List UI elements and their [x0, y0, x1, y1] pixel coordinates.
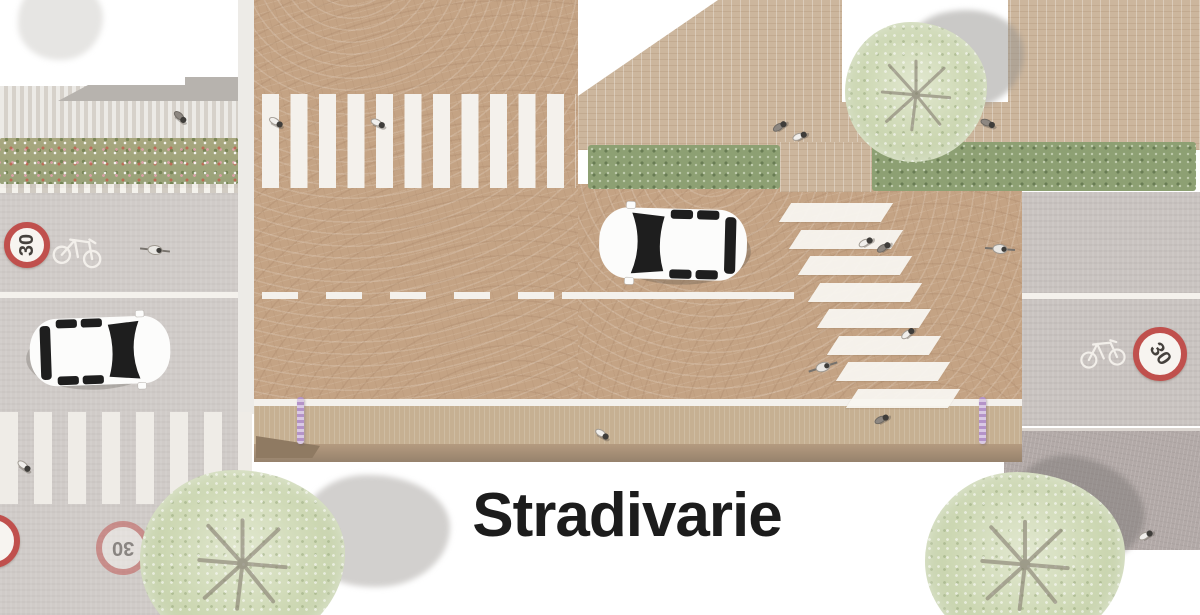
cyclist-icon [983, 241, 1018, 257]
speed-limit-value: 30 [17, 234, 37, 256]
speed-limit-value: 30 [112, 538, 134, 558]
lane-line-west [0, 292, 238, 298]
centre-line-solid [562, 292, 794, 299]
street-name-label: Stradivarie [262, 478, 992, 553]
crosswalk-north [262, 94, 576, 188]
crosswalk-stripe [827, 336, 941, 355]
speed-limit-sign-east: 30 [1133, 327, 1187, 381]
car-icon-main-road [590, 197, 754, 293]
road-east [1022, 192, 1200, 426]
building-wall [58, 85, 238, 101]
crosswalk-stripe [798, 256, 912, 275]
crosswalk-stripe [846, 389, 960, 408]
crosswalk-stripe [808, 283, 922, 302]
lane-line-east [1022, 293, 1200, 299]
sidewalk-south [254, 406, 1022, 446]
bike-lane-marking-icon [49, 222, 109, 275]
building-wall-step [185, 77, 238, 87]
curb-strip [238, 0, 254, 414]
car-icon-west-road [23, 305, 180, 398]
speed-limit-value: 30 [0, 530, 3, 552]
centre-line-dashed [262, 292, 562, 299]
curb-dash-band [0, 184, 238, 193]
sidewalk-south-shadow [254, 444, 1022, 462]
tree-icon-northeast [845, 22, 987, 162]
street-plan-canvas: 30 30 30 30 [0, 0, 1200, 615]
speed-limit-sign-west: 30 [4, 222, 50, 268]
crosswalk-stripe [836, 362, 950, 381]
hedge-strip-west [588, 145, 780, 189]
tree-shadow [18, 0, 103, 60]
crosswalk-stripe [779, 203, 893, 222]
bike-lane-marking-icon [1076, 328, 1130, 375]
flower-bed [0, 138, 238, 184]
cobble-street-north [254, 0, 578, 426]
bollard-icon [297, 397, 304, 444]
bollard-icon [979, 397, 986, 444]
speed-limit-value: 30 [1145, 339, 1174, 369]
